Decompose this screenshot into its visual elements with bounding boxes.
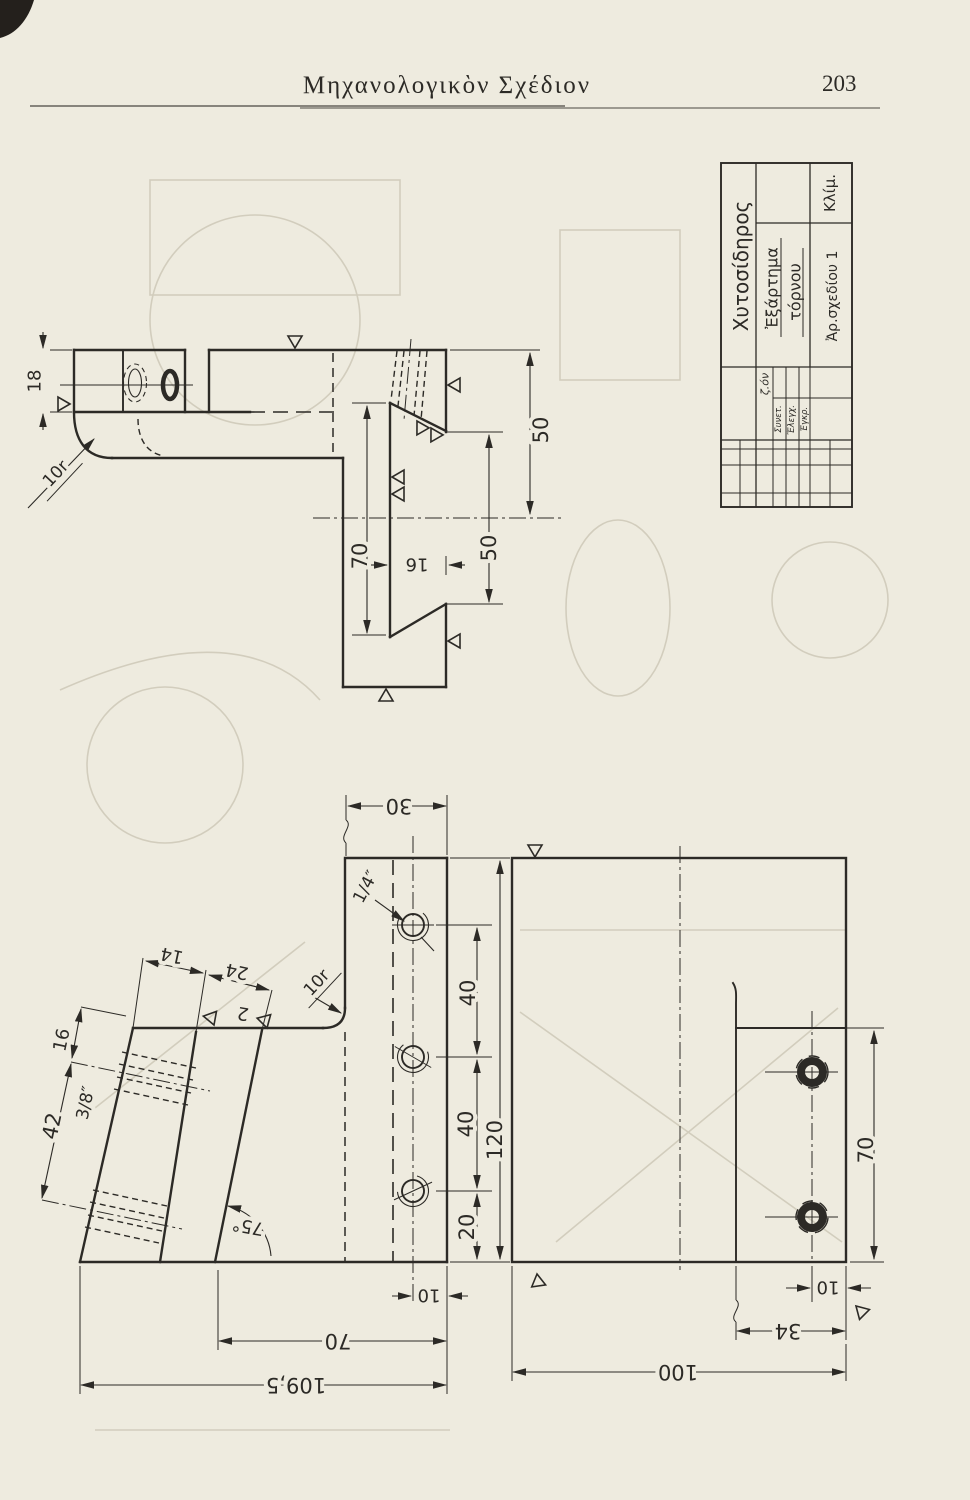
dim-70-base: 70 xyxy=(325,1329,352,1353)
thread-quarter-inch: 1/4″ xyxy=(349,867,382,906)
scanned-textbook-page: Μηχανολογικὸν Σχέδιον 203 Χυτοσίδηρος Κλ… xyxy=(0,0,970,1500)
end-view: 70 10 34 100 xyxy=(512,845,884,1384)
thread-three-eighths-inch: 3/8″ xyxy=(73,1084,100,1121)
dim-24: 24 xyxy=(224,958,251,983)
surface-note-2: 2 xyxy=(236,1002,251,1025)
dim-16-arm: 16 xyxy=(49,1027,74,1054)
part-name-line2: τόρνου xyxy=(786,263,805,321)
finish-mark-icon xyxy=(528,845,542,857)
dim-50-lower: 50 xyxy=(477,535,501,562)
dim-100: 100 xyxy=(658,1360,698,1384)
dim-50-upper: 50 xyxy=(529,417,553,444)
dim-70-end: 70 xyxy=(854,1137,878,1164)
threaded-hole xyxy=(391,903,435,947)
finish-mark-icon xyxy=(448,634,460,648)
approval-row: Ἔλεγχ. xyxy=(787,405,797,435)
finish-mark-icon xyxy=(851,1301,869,1319)
dim-30: 30 xyxy=(386,794,413,818)
dim-42: 42 xyxy=(37,1110,66,1141)
dim-angle-75: 75° xyxy=(230,1213,265,1239)
radius-10r: 10r xyxy=(39,457,73,492)
side-view: 18 10r 50 50 70 16 xyxy=(25,332,564,701)
drawing-number: Ἀρ.σχεδίου 1 xyxy=(825,251,841,342)
page-title: Μηχανολογικὸν Σχέδιον xyxy=(303,72,591,99)
dim-109-5: 109,5 xyxy=(266,1373,326,1397)
finish-mark-icon xyxy=(392,470,404,484)
counterbored-hole xyxy=(124,364,147,402)
dim-40-b: 40 xyxy=(454,1111,478,1138)
part-name-line1: Ἐξάρτημα xyxy=(763,247,782,329)
hidden-tapped-hole xyxy=(42,1190,182,1243)
dim-10-end: 10 xyxy=(817,1277,840,1298)
plan-view: 30 1/4″ 40 40 20 120 10 70 109,5 14 24 xyxy=(37,794,510,1397)
dim-18: 18 xyxy=(25,370,46,393)
radius-10r: 10r xyxy=(300,966,334,1001)
finish-mark-icon xyxy=(448,378,460,392)
finish-mark-icon xyxy=(392,487,404,501)
page-number: 203 xyxy=(822,71,857,96)
finish-mark-icon xyxy=(530,1273,546,1287)
finish-mark-icon xyxy=(288,336,302,348)
approval-row: Ἐγκρ. xyxy=(800,407,810,431)
dim-120: 120 xyxy=(483,1120,507,1160)
dim-14: 14 xyxy=(159,942,186,967)
dim-10: 10 xyxy=(418,1285,441,1306)
finish-mark-icon xyxy=(58,397,70,411)
dim-16: 16 xyxy=(406,554,429,575)
scale-label: Κλίμ. xyxy=(821,174,839,212)
signature: ζ.όν xyxy=(759,373,772,396)
scan-corner-artifact xyxy=(0,0,34,38)
dim-20: 20 xyxy=(455,1214,479,1241)
material-label: Χυτοσίδηρος xyxy=(729,201,753,332)
page-header: Μηχανολογικὸν Σχέδιον 203 xyxy=(0,0,880,108)
dim-70: 70 xyxy=(348,543,372,570)
dim-40-a: 40 xyxy=(456,980,480,1007)
mechanical-drawing-scan: Μηχανολογικὸν Σχέδιον 203 Χυτοσίδηρος Κλ… xyxy=(0,0,970,1500)
finish-mark-icon xyxy=(379,689,393,701)
title-block: Χυτοσίδηρος Κλίμ. Ἐξάρτημα τόρνου Ἀρ.σχε… xyxy=(721,163,852,507)
dim-34: 34 xyxy=(775,1319,802,1343)
approval-row: Συνετ. xyxy=(774,405,784,432)
